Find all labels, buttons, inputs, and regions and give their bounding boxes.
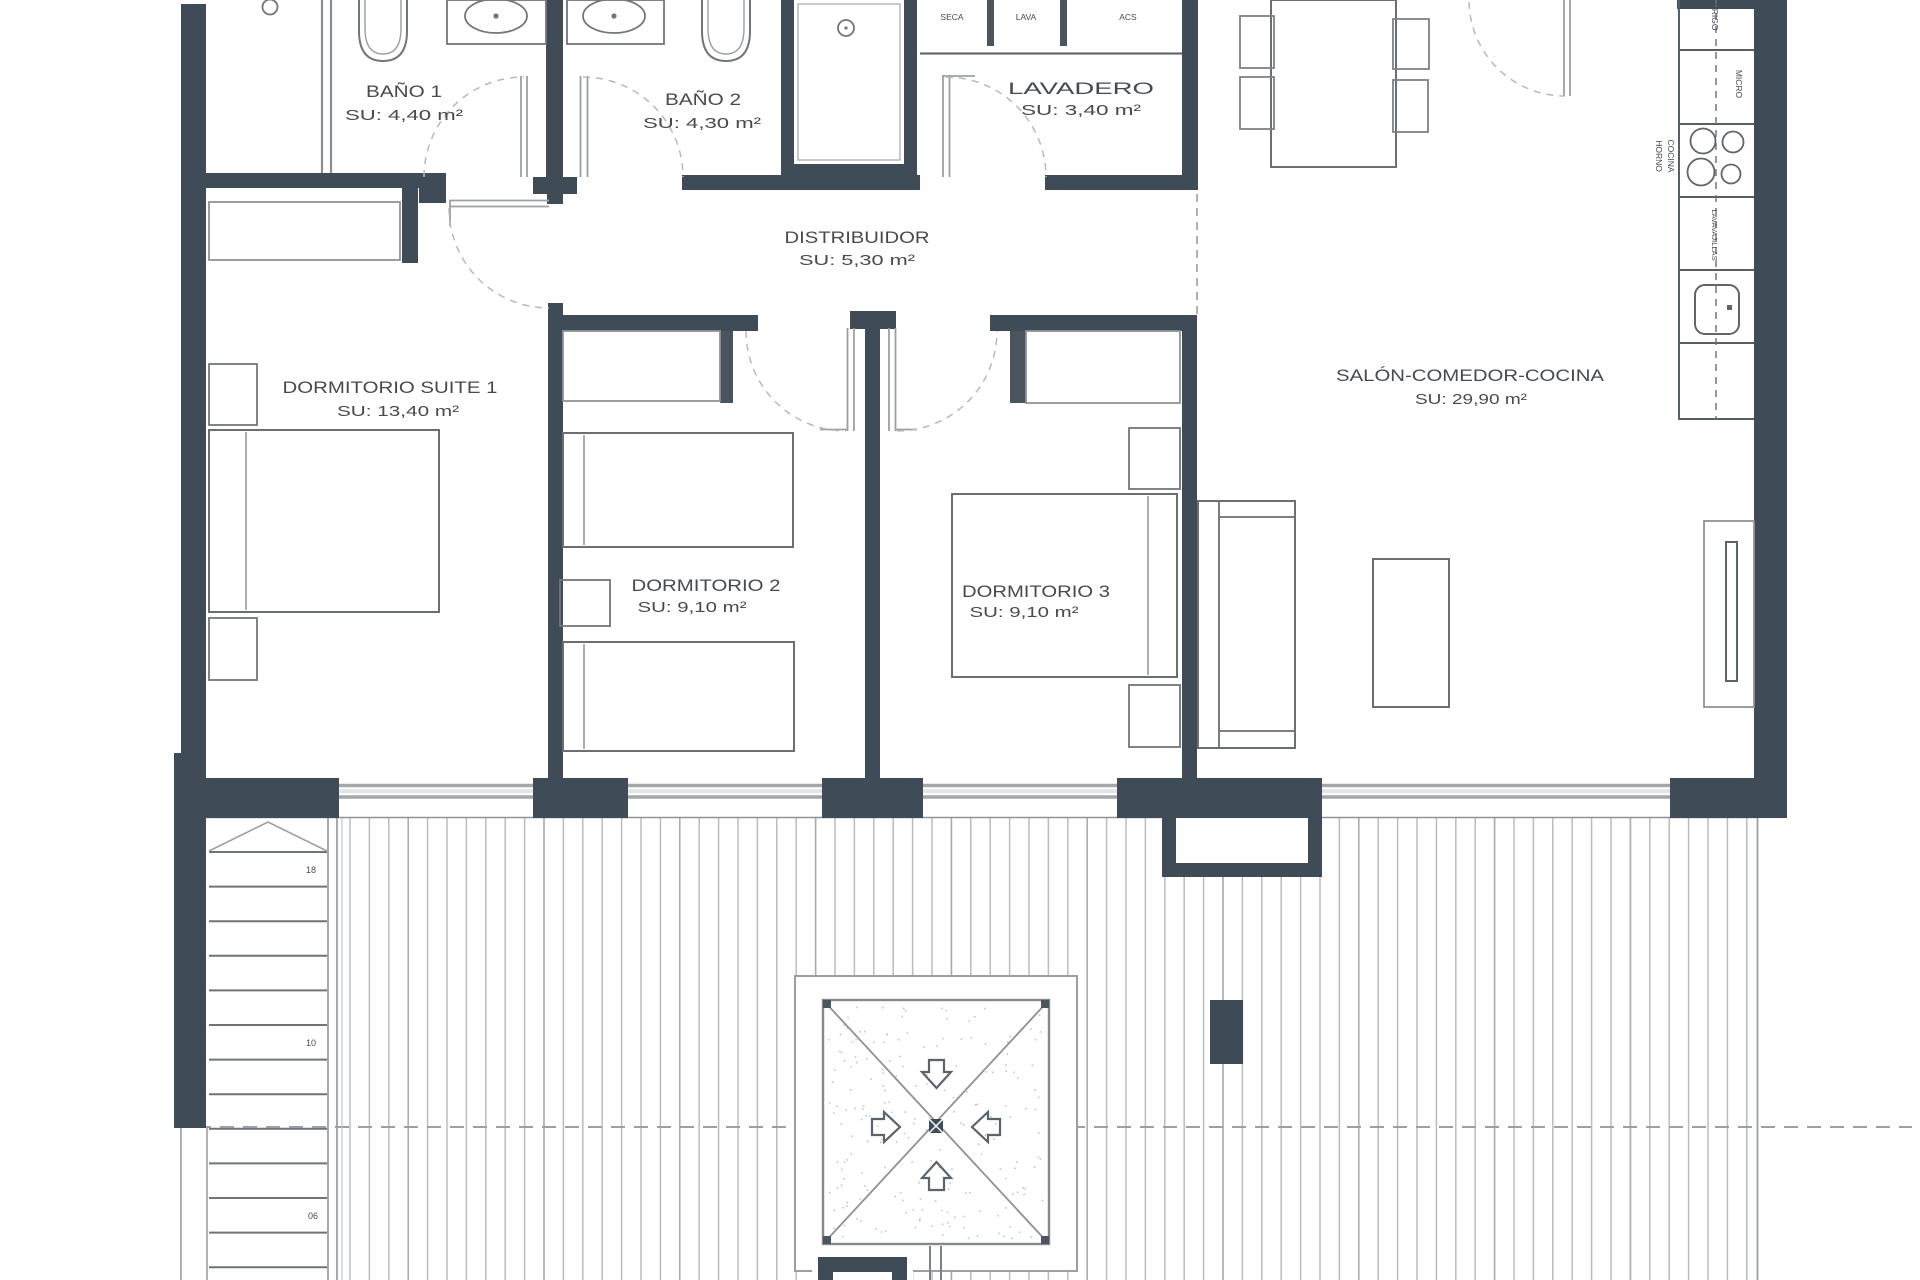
svg-text:06: 06: [308, 1211, 318, 1221]
svg-text:SU: 4,30 m²: SU: 4,30 m²: [643, 115, 761, 132]
svg-text:FRIGO: FRIGO: [1710, 4, 1720, 31]
svg-text:SU: 29,90 m²: SU: 29,90 m²: [1415, 391, 1527, 408]
svg-text:LAVADERO: LAVADERO: [1008, 80, 1154, 98]
svg-text:DORMITORIO 2: DORMITORIO 2: [632, 577, 781, 595]
svg-text:MICRO: MICRO: [1734, 70, 1744, 99]
svg-text:ACS: ACS: [1119, 12, 1137, 22]
svg-text:SU: 4,40 m²: SU: 4,40 m²: [345, 107, 463, 124]
svg-text:SU: 3,40 m²: SU: 3,40 m²: [1021, 102, 1141, 119]
svg-text:HORNO: HORNO: [1654, 140, 1664, 172]
svg-text:DORMITORIO SUITE 1: DORMITORIO SUITE 1: [283, 379, 498, 397]
svg-text:COCINA: COCINA: [1666, 139, 1676, 172]
svg-text:LAVAVAJILLAS: LAVAVAJILLAS: [1710, 209, 1719, 260]
svg-text:BAÑO 1: BAÑO 1: [366, 81, 442, 101]
svg-text:SU: 9,10 m²: SU: 9,10 m²: [970, 604, 1079, 621]
svg-text:SALÓN-COMEDOR-COCINA: SALÓN-COMEDOR-COCINA: [1336, 366, 1604, 385]
svg-text:SU: 5,30 m²: SU: 5,30 m²: [799, 252, 915, 269]
svg-text:DORMITORIO 3: DORMITORIO 3: [962, 583, 1110, 601]
svg-text:DISTRIBUIDOR: DISTRIBUIDOR: [785, 229, 930, 247]
svg-text:SECA: SECA: [940, 12, 963, 22]
svg-text:LAVA: LAVA: [1016, 12, 1037, 22]
svg-text:10: 10: [306, 1038, 316, 1048]
svg-text:SU: 13,40 m²: SU: 13,40 m²: [337, 403, 459, 420]
svg-text:SU: 9,10 m²: SU: 9,10 m²: [638, 599, 747, 616]
svg-text:18: 18: [306, 865, 316, 875]
svg-text:BAÑO 2: BAÑO 2: [665, 89, 741, 109]
